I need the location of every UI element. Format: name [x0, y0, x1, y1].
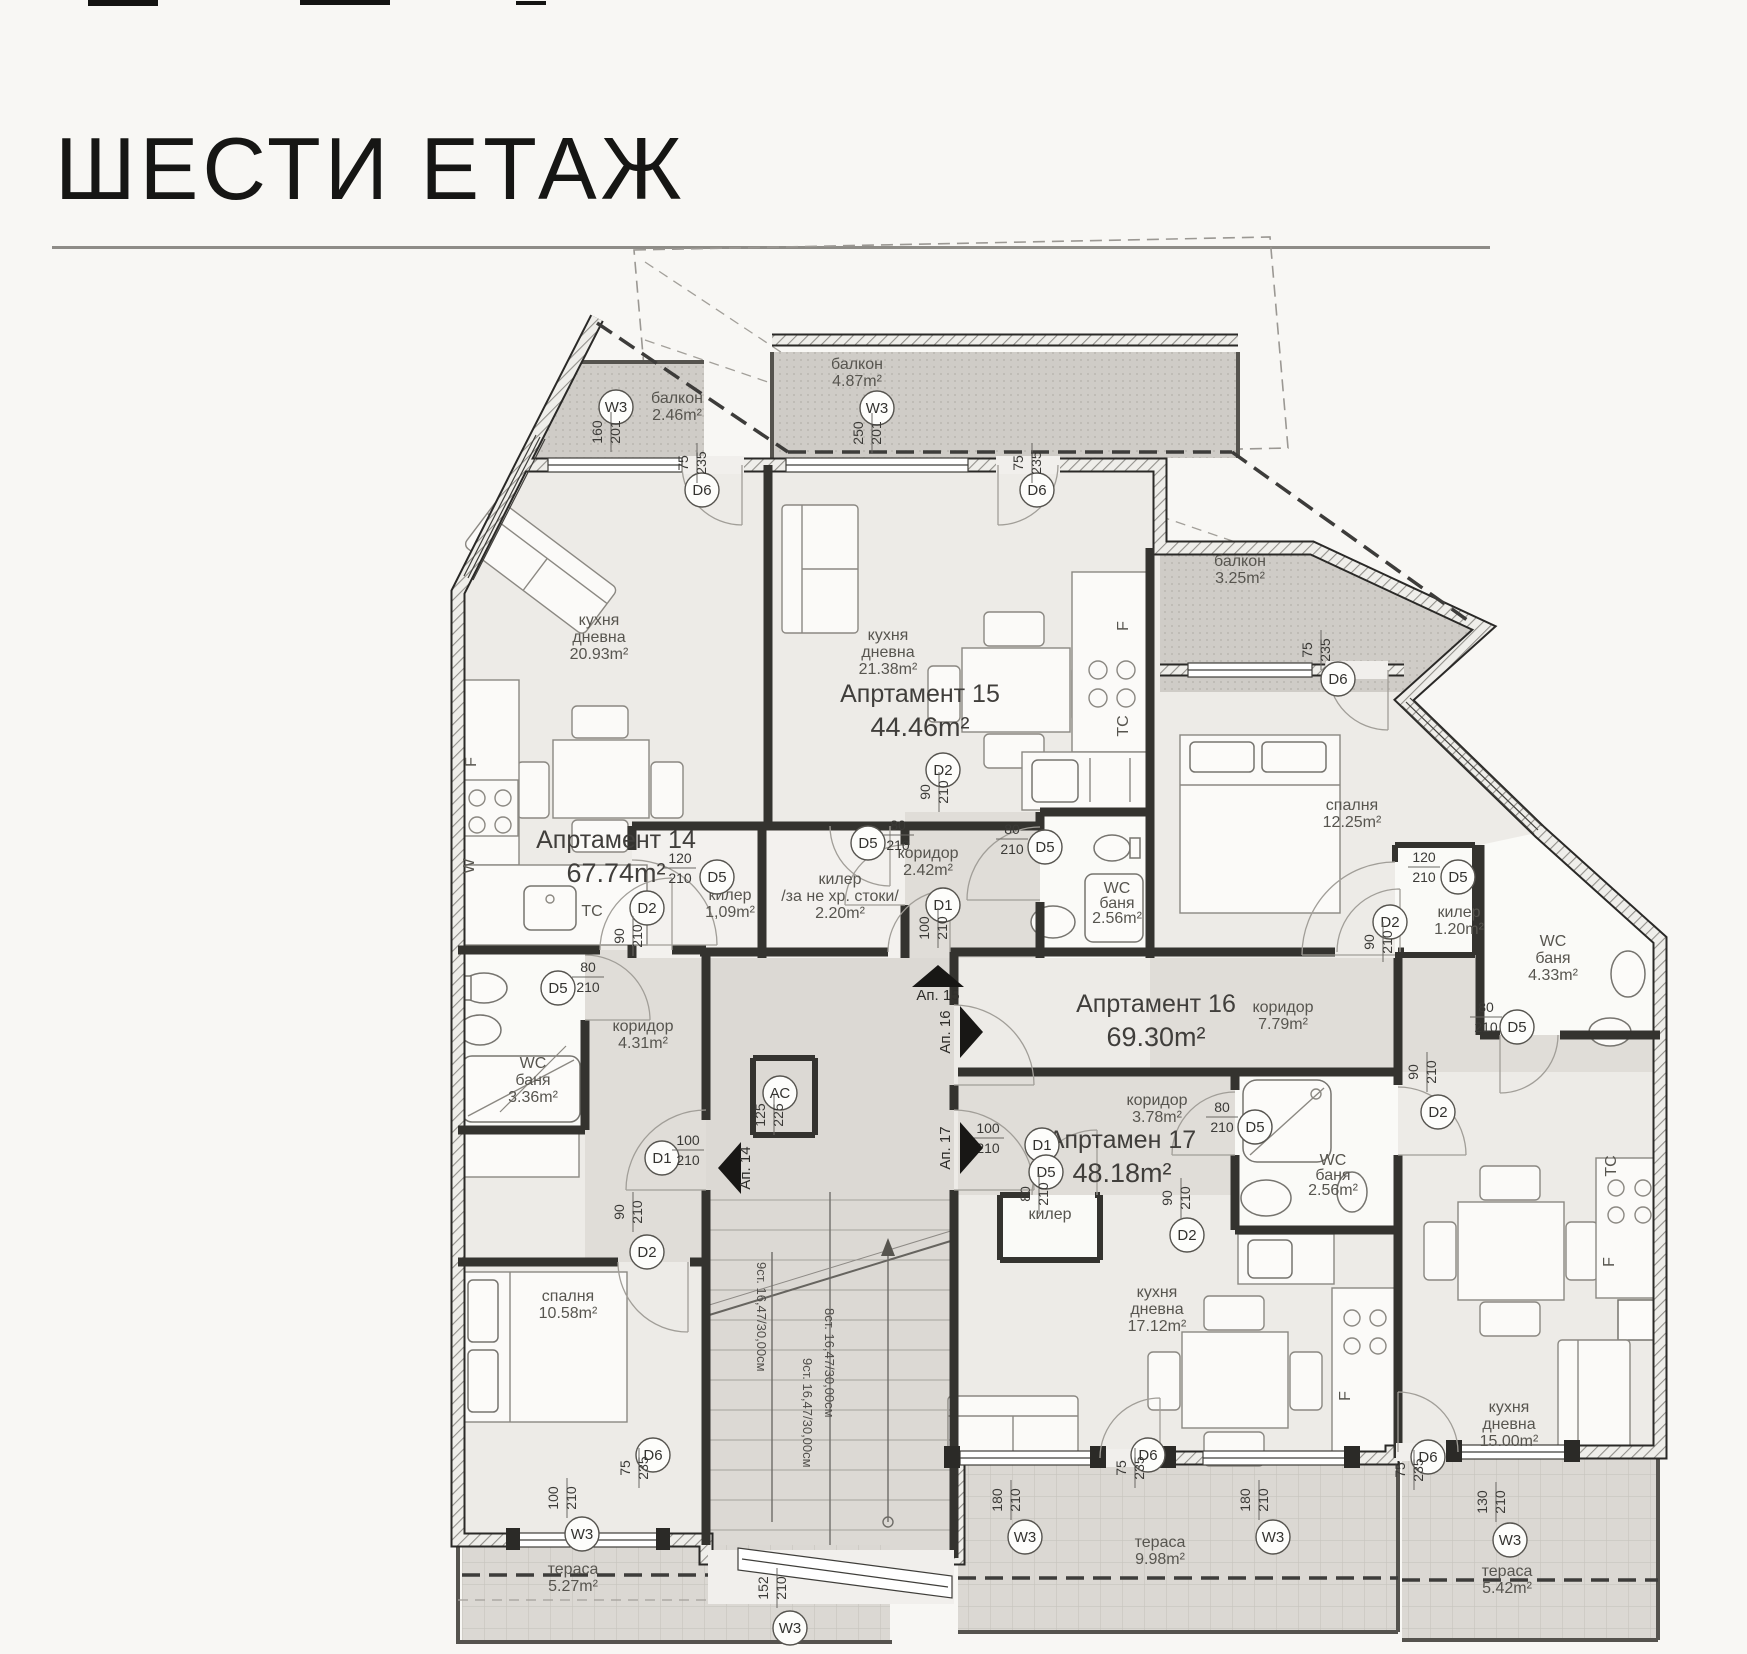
room-label: F	[1115, 621, 1132, 631]
room-label: 21.38m²	[859, 661, 918, 678]
room-label: 15.00m²	[1480, 1433, 1539, 1450]
room-label: 5.27m²	[548, 1578, 598, 1595]
marker-label: W3	[866, 400, 889, 417]
dim-height: 210	[1379, 930, 1395, 954]
dim-height: 210	[886, 837, 910, 853]
dim-width: 80	[1017, 1186, 1033, 1202]
room-label: 1.20m²	[1434, 921, 1484, 938]
room-label: 2.42m²	[903, 862, 953, 879]
marker-label: W3	[1262, 1529, 1285, 1546]
entrance-label: Ап. 16	[937, 1010, 954, 1053]
dim-height: 210	[1474, 1019, 1498, 1035]
room-label: ТС	[1603, 1155, 1620, 1176]
apartment-area: 44.46m²	[870, 712, 969, 742]
dim-height: 210	[1412, 869, 1436, 885]
dim-height: 210	[1035, 1182, 1051, 1206]
marker-label: W3	[779, 1620, 802, 1637]
marker-label: D5	[1448, 869, 1467, 886]
room-label: баня	[515, 1072, 550, 1089]
room-label: спалня	[1326, 797, 1378, 814]
dim-width: 250	[850, 421, 866, 445]
room-label: балкон	[651, 390, 703, 407]
apartment-name: Апртамен 17	[1048, 1126, 1196, 1154]
room-label: W	[461, 858, 478, 874]
scan-artifacts	[88, 0, 546, 6]
room-label: 12.25m²	[1323, 814, 1382, 831]
dim-height: 225	[770, 1103, 786, 1127]
room-label: дневна	[572, 629, 625, 646]
marker-label: D1	[652, 1150, 671, 1167]
dim-width: 160	[589, 420, 605, 444]
room-label: кухня	[1137, 1284, 1178, 1301]
marker-label: D6	[1027, 482, 1046, 499]
dim-width: 90	[611, 1204, 627, 1220]
apartment-name: Апртамент 16	[1076, 990, 1236, 1018]
room-label: 7.79m²	[1258, 1016, 1308, 1033]
room-label: 4.33m²	[1528, 967, 1578, 984]
marker-label: D5	[1245, 1119, 1264, 1136]
room-label: F	[1337, 1391, 1354, 1401]
dim-height: 210	[1210, 1119, 1234, 1135]
entrance-label: Ап. 15	[916, 987, 959, 1004]
dim-height: 201	[868, 421, 884, 445]
dim-width: 75	[675, 455, 691, 471]
marker-label: D2	[1177, 1227, 1196, 1244]
room-label: тераса	[548, 1561, 599, 1578]
marker-label: W3	[605, 399, 628, 416]
dim-height: 210	[1007, 1488, 1023, 1512]
apartment-area: 48.18m²	[1072, 1158, 1171, 1188]
room-label: 2.20m²	[815, 905, 865, 922]
room-label: дневна	[1482, 1416, 1535, 1433]
room-label: дневна	[1130, 1301, 1183, 1318]
dim-height: 235	[1028, 451, 1044, 475]
marker-label: D5	[707, 869, 726, 886]
dim-height: 210	[773, 1576, 789, 1600]
room-label: 2.56m²	[1308, 1182, 1358, 1199]
marker-label: D5	[1035, 839, 1054, 856]
dim-width: 180	[989, 1488, 1005, 1512]
marker-label: D5	[858, 835, 877, 852]
dim-width: 80	[890, 817, 906, 833]
room-label: 3.78m²	[1132, 1109, 1182, 1126]
dim-height: 210	[935, 780, 951, 804]
marker-label: АС	[770, 1085, 791, 1102]
stair-flight-label: 8ст. 16,47/30,00см	[822, 1308, 837, 1418]
dim-height: 210	[1255, 1488, 1271, 1512]
apartment-area: 69.30m²	[1106, 1022, 1205, 1052]
room-label: баня	[1535, 950, 1570, 967]
dim-width: 90	[1159, 1190, 1175, 1206]
room-label: 3.36m²	[508, 1089, 558, 1106]
dim-height: 235	[1410, 1458, 1426, 1482]
dim-height: 210	[1492, 1490, 1508, 1514]
dim-height: 201	[607, 420, 623, 444]
room-label: 2.46m²	[652, 407, 702, 424]
dim-width: 75	[1299, 642, 1315, 658]
dim-width: 80	[1214, 1099, 1230, 1115]
room-label: кухня	[1489, 1399, 1530, 1416]
room-label: кухня	[579, 612, 620, 629]
marker-label: D1	[933, 897, 952, 914]
room-label: F	[463, 757, 480, 767]
dim-width: 75	[1113, 1460, 1129, 1476]
room-label: коридор	[1252, 999, 1313, 1016]
room-label: 20.93m²	[570, 646, 629, 663]
marker-label: D2	[637, 900, 656, 917]
entrance-label: Ап. 14	[737, 1146, 754, 1189]
room-label: килер	[1437, 904, 1480, 921]
dim-height: 210	[563, 1486, 579, 1510]
room-label: тераса	[1482, 1563, 1533, 1580]
dim-height: 210	[676, 1152, 700, 1168]
stair-flight-label: 9ст. 16,47/30,00см	[754, 1262, 769, 1372]
floor-plan-drawing: Апртамент 1467.74m²Апртамент 1544.46m²Ап…	[0, 0, 1747, 1654]
marker-label: D2	[1428, 1104, 1447, 1121]
dim-height: 235	[693, 451, 709, 475]
marker-label: W3	[1014, 1529, 1037, 1546]
bed	[1180, 735, 1340, 913]
marker-label: D1	[1032, 1137, 1051, 1154]
room-label: 4.31m²	[618, 1035, 668, 1052]
entrance-label: Ап. 17	[937, 1126, 954, 1169]
dim-width: 75	[617, 1460, 633, 1476]
dim-height: 210	[668, 870, 692, 886]
room-label: ТС	[581, 903, 602, 920]
dim-height: 210	[576, 979, 600, 995]
dim-height: 210	[934, 916, 950, 940]
dim-width: 100	[976, 1120, 1000, 1136]
dim-width: 100	[916, 916, 932, 940]
marker-label: D5	[548, 980, 567, 997]
room-label: тераса	[1135, 1534, 1186, 1551]
dim-height: 235	[635, 1456, 651, 1480]
room-label: 10.58m²	[539, 1305, 598, 1322]
room-label: 3.25m²	[1215, 570, 1265, 587]
dim-width: 80	[580, 959, 596, 975]
room-label: балкон	[1214, 553, 1266, 570]
dim-width: 120	[668, 850, 692, 866]
sofa	[1558, 1340, 1630, 1450]
marker-label: W3	[1499, 1532, 1522, 1549]
dim-height: 235	[1317, 638, 1333, 662]
room-label: спалня	[542, 1288, 594, 1305]
marker-label: D5	[1507, 1019, 1526, 1036]
dim-width: 130	[1474, 1490, 1490, 1514]
dim-width: 75	[1010, 455, 1026, 471]
dim-width: 180	[1237, 1488, 1253, 1512]
dim-width: 90	[1405, 1064, 1421, 1080]
dim-width: 80	[1004, 821, 1020, 837]
marker-label: D6	[1328, 671, 1347, 688]
room-label: 4.87m²	[832, 373, 882, 390]
dim-height: 210	[629, 924, 645, 948]
dim-height: 210	[1000, 841, 1024, 857]
room-label: ТС	[1115, 715, 1132, 736]
marker-label: W3	[571, 1526, 594, 1543]
room-label: дневна	[861, 644, 914, 661]
wardrobe	[459, 1133, 579, 1177]
room-label: F	[1601, 1257, 1618, 1267]
room-label: WC	[520, 1055, 547, 1072]
room-label: балкон	[831, 356, 883, 373]
sofa	[782, 505, 858, 633]
room-label: 1,09m²	[705, 904, 755, 921]
dim-width: 90	[611, 928, 627, 944]
marker-label: D2	[933, 762, 952, 779]
room-label: WC	[1540, 933, 1567, 950]
apartment-name: Апртамент 15	[840, 680, 1000, 708]
apartment-area: 67.74m²	[566, 858, 665, 888]
room-label: 2.56m²	[1092, 910, 1142, 927]
stair-flight-label: 9ст. 16,47/30,00см	[800, 1358, 815, 1468]
room-label: коридор	[1126, 1092, 1187, 1109]
dim-height: 210	[1423, 1060, 1439, 1084]
dim-width: 75	[1392, 1462, 1408, 1478]
room-label: /за не хр. стоки/	[781, 888, 899, 905]
dim-width: 90	[1361, 934, 1377, 950]
room-label: килер	[1028, 1206, 1071, 1223]
dim-width: 80	[1478, 999, 1494, 1015]
scanned-floor-plan-page: ШЕСТИ ЕТАЖ	[0, 0, 1747, 1654]
dim-width: 100	[545, 1486, 561, 1510]
marker-label: D6	[692, 482, 711, 499]
room-label: кухня	[868, 627, 909, 644]
room-label: коридор	[612, 1018, 673, 1035]
marker-label: D2	[637, 1244, 656, 1261]
room-label: 17.12m²	[1128, 1318, 1187, 1335]
room-label: 5.42m²	[1482, 1580, 1532, 1597]
dim-height: 235	[1131, 1456, 1147, 1480]
room-label: 9.98m²	[1135, 1551, 1185, 1568]
dim-height: 210	[629, 1200, 645, 1224]
dim-width: 125	[752, 1103, 768, 1127]
dim-width: 152	[755, 1576, 771, 1600]
room-label: килер	[818, 871, 861, 888]
dim-width: 100	[676, 1132, 700, 1148]
dim-width: 90	[917, 784, 933, 800]
dim-width: 120	[1412, 849, 1436, 865]
dim-height: 210	[1177, 1186, 1193, 1210]
